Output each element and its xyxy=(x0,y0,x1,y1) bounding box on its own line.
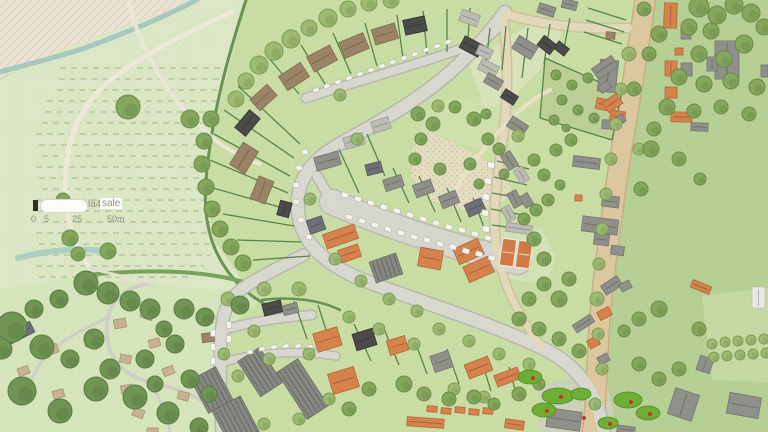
parking-bay xyxy=(283,344,289,349)
parking-bay xyxy=(211,344,216,351)
building xyxy=(119,354,131,364)
garden-bed xyxy=(518,370,542,384)
building xyxy=(611,245,625,256)
scale-tick-50m: 50m xyxy=(107,214,125,224)
building xyxy=(441,408,451,415)
building xyxy=(418,247,444,270)
garden-bed xyxy=(636,406,660,420)
parking-bay xyxy=(293,182,299,188)
garden-bed xyxy=(571,388,591,400)
watermark-highlight: sale xyxy=(100,198,122,209)
garden-bed xyxy=(614,392,642,408)
building xyxy=(707,57,717,71)
building xyxy=(606,32,616,40)
scale-bar-segment xyxy=(33,200,38,211)
parking-bay xyxy=(293,199,299,205)
parking-bay xyxy=(211,358,216,365)
building xyxy=(469,409,479,416)
parking-bay xyxy=(482,226,490,233)
scale-bar-blank-pill xyxy=(40,199,88,213)
parking-bay xyxy=(481,210,489,217)
building xyxy=(113,318,126,329)
building xyxy=(147,428,158,432)
parking-bay xyxy=(271,345,277,350)
building xyxy=(675,48,683,55)
scale-tick-5: 5 xyxy=(44,214,49,224)
garden-bed xyxy=(532,403,556,417)
parking-bay xyxy=(211,330,216,337)
parking-bay xyxy=(296,165,303,171)
parking-bay xyxy=(227,322,232,329)
building xyxy=(455,407,465,414)
building xyxy=(427,406,437,413)
building xyxy=(664,3,678,28)
garden-bed xyxy=(598,417,618,429)
building xyxy=(691,123,708,132)
parking-bay xyxy=(484,178,492,185)
parking-bay xyxy=(295,344,301,349)
building xyxy=(752,287,765,308)
site-masterplan-view: la4 sale 0 5 25 50m xyxy=(0,0,768,432)
garden-bed xyxy=(542,388,574,404)
parking-bay xyxy=(247,350,253,355)
building xyxy=(761,65,768,77)
parking-bay xyxy=(259,347,265,352)
parking-bay xyxy=(227,336,232,343)
building xyxy=(665,87,677,98)
parking-bay xyxy=(487,162,495,169)
scale-tick-25: 25 xyxy=(72,214,82,224)
parking-bay xyxy=(482,194,490,201)
scale-bar: la4 sale 0 5 25 50m xyxy=(30,197,150,231)
scale-tick-0: 0 xyxy=(31,214,36,224)
building xyxy=(575,195,582,201)
